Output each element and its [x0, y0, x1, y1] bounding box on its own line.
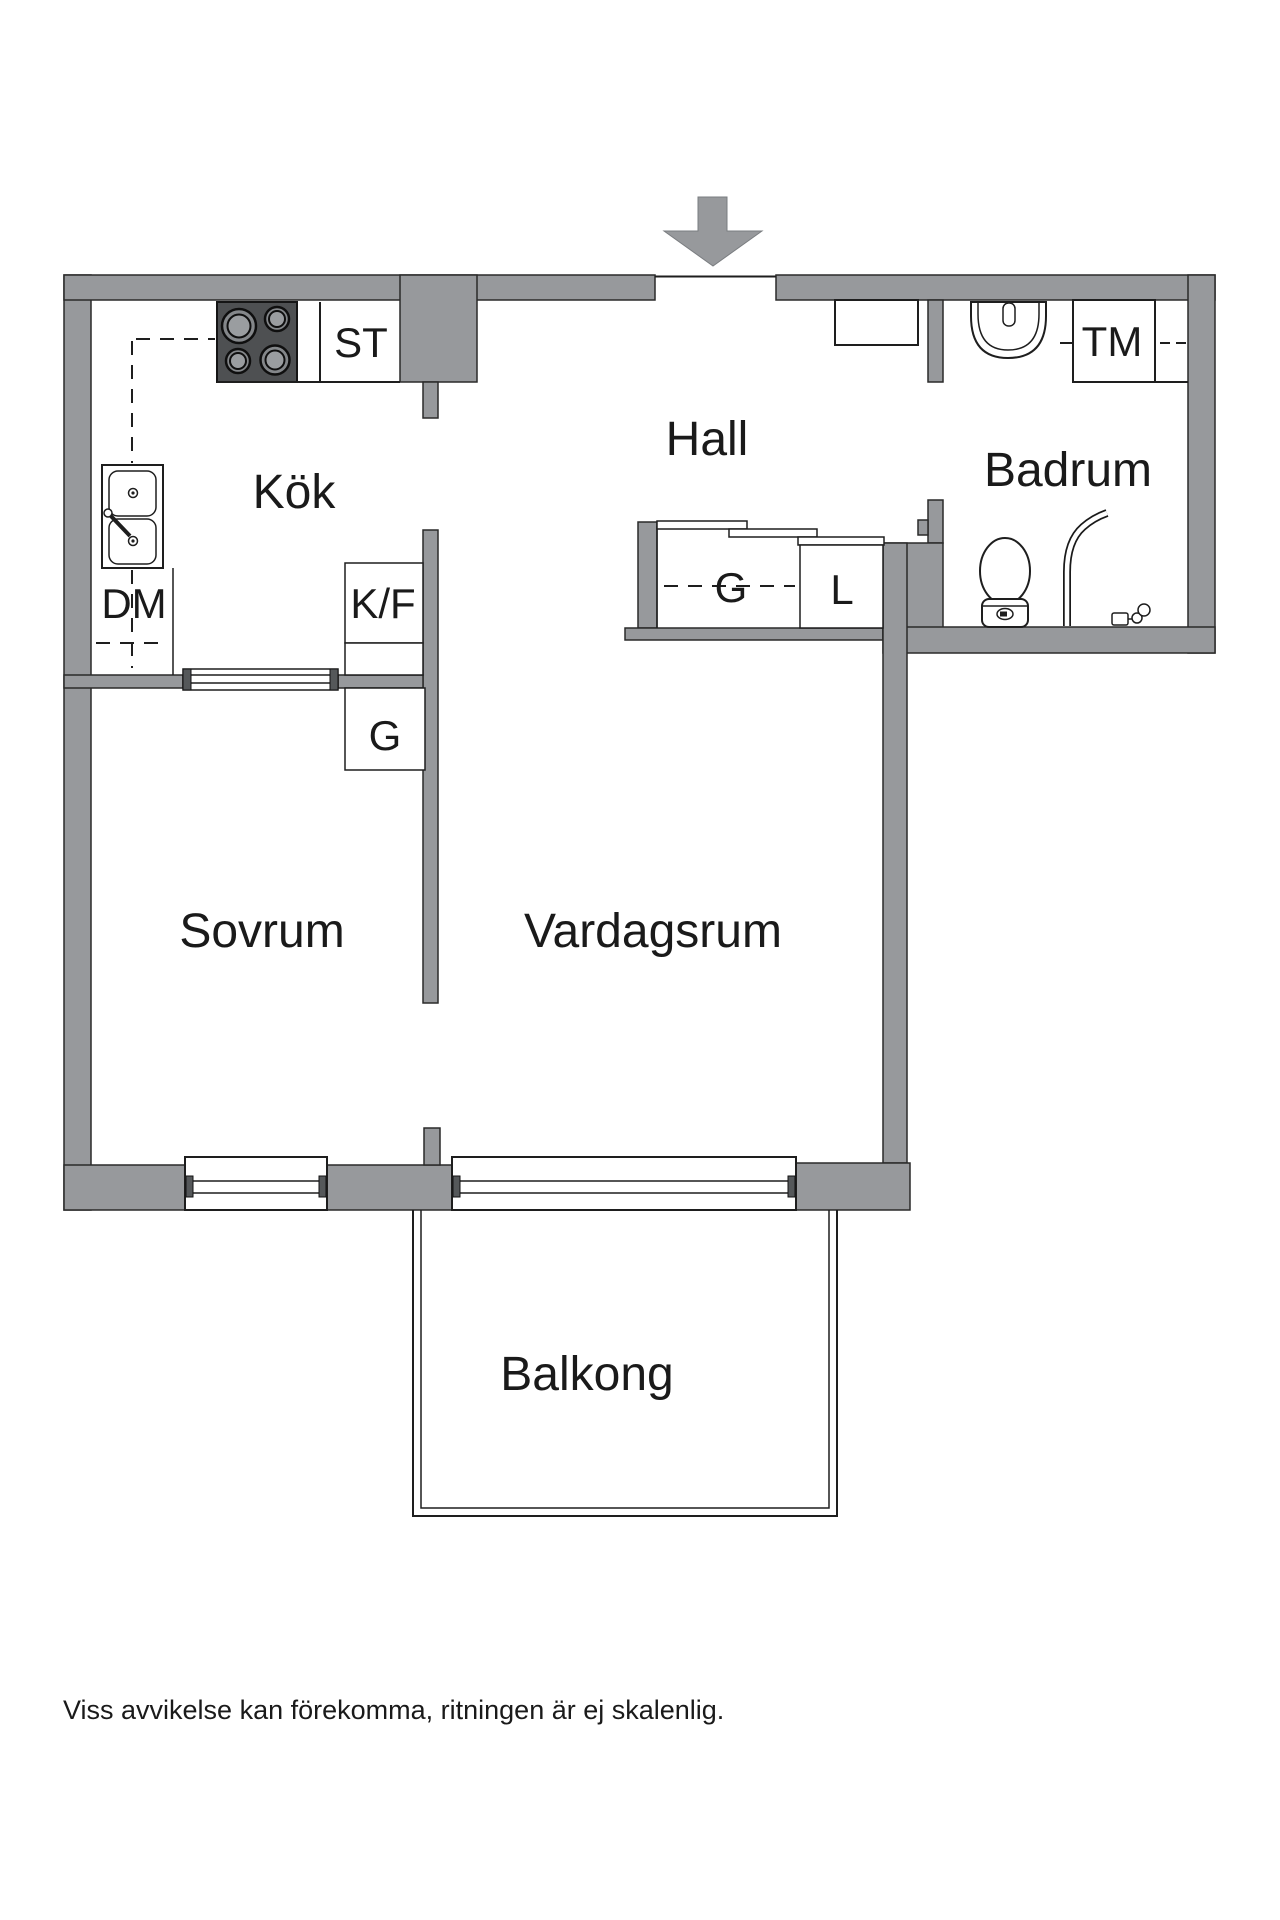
room-label-kok: Kök [253, 466, 337, 519]
wall-kitchen-door-stub [423, 382, 438, 418]
sliding-door-panel-3 [798, 537, 884, 545]
label-dm: DM [101, 580, 166, 627]
wall-bottom-right [796, 1163, 910, 1210]
wall-kitchen-corner-chunk [400, 275, 477, 382]
serving-hatch-window [183, 669, 338, 690]
wall-vardagsrum-right [883, 543, 907, 1163]
floorplan-page: Kök Hall Badrum Sovrum Vardagsrum Balkon… [0, 0, 1280, 1920]
wall-kok-sovrum-left [64, 675, 183, 688]
sovrum-window [185, 1157, 327, 1210]
disclaimer-text: Viss avvikelse kan förekomma, ritningen … [63, 1695, 724, 1725]
floor-drain-icon [1112, 604, 1150, 625]
wall-closet-post [638, 522, 657, 628]
shower-rail-icon [1067, 513, 1107, 626]
wall-badrum-bottom [883, 627, 1215, 653]
wall-kok-sovrum-right [338, 675, 423, 688]
wall-top-left [64, 275, 655, 300]
label-l-hall: L [830, 566, 853, 613]
label-st: ST [334, 319, 388, 366]
sliding-door-panel-1 [657, 521, 747, 529]
wall-right [1188, 275, 1215, 653]
sliding-door-panel-2 [729, 529, 817, 537]
hall-shelf-box [835, 300, 918, 345]
room-label-vardagsrum: Vardagsrum [524, 905, 782, 958]
room-label-sovrum: Sovrum [179, 905, 344, 958]
wall-top-right [776, 275, 1215, 300]
washbasin-icon [971, 302, 1046, 358]
room-label-badrum: Badrum [984, 444, 1152, 497]
wall-sovrum-bottom-stub [424, 1128, 440, 1165]
wall-bottom-mid [327, 1165, 452, 1210]
room-label-hall: Hall [666, 413, 749, 466]
kitchen-sink-icon [102, 465, 163, 568]
room-label-balkong: Balkong [500, 1348, 673, 1401]
floorplan-drawing: Kök Hall Badrum Sovrum Vardagsrum Balkon… [0, 0, 1280, 1920]
wall-badrum-door-notch [918, 520, 928, 535]
toilet-icon [980, 538, 1030, 627]
label-kf: K/F [350, 580, 415, 627]
entrance-arrow-icon [664, 197, 762, 266]
walls [64, 275, 1215, 1210]
label-tm: TM [1082, 318, 1143, 365]
label-g-hall: G [715, 564, 748, 611]
kitchen-fixtures [96, 302, 425, 770]
stove-icon [217, 302, 297, 382]
wall-closet-bottom [625, 628, 883, 640]
wall-badrum-divider-top [928, 300, 943, 382]
vardagsrum-window [452, 1157, 796, 1210]
wall-badrum-door-post [928, 500, 943, 543]
wall-left [64, 275, 91, 1210]
label-g-kok: G [369, 712, 402, 759]
wall-bottom-left [64, 1165, 185, 1210]
